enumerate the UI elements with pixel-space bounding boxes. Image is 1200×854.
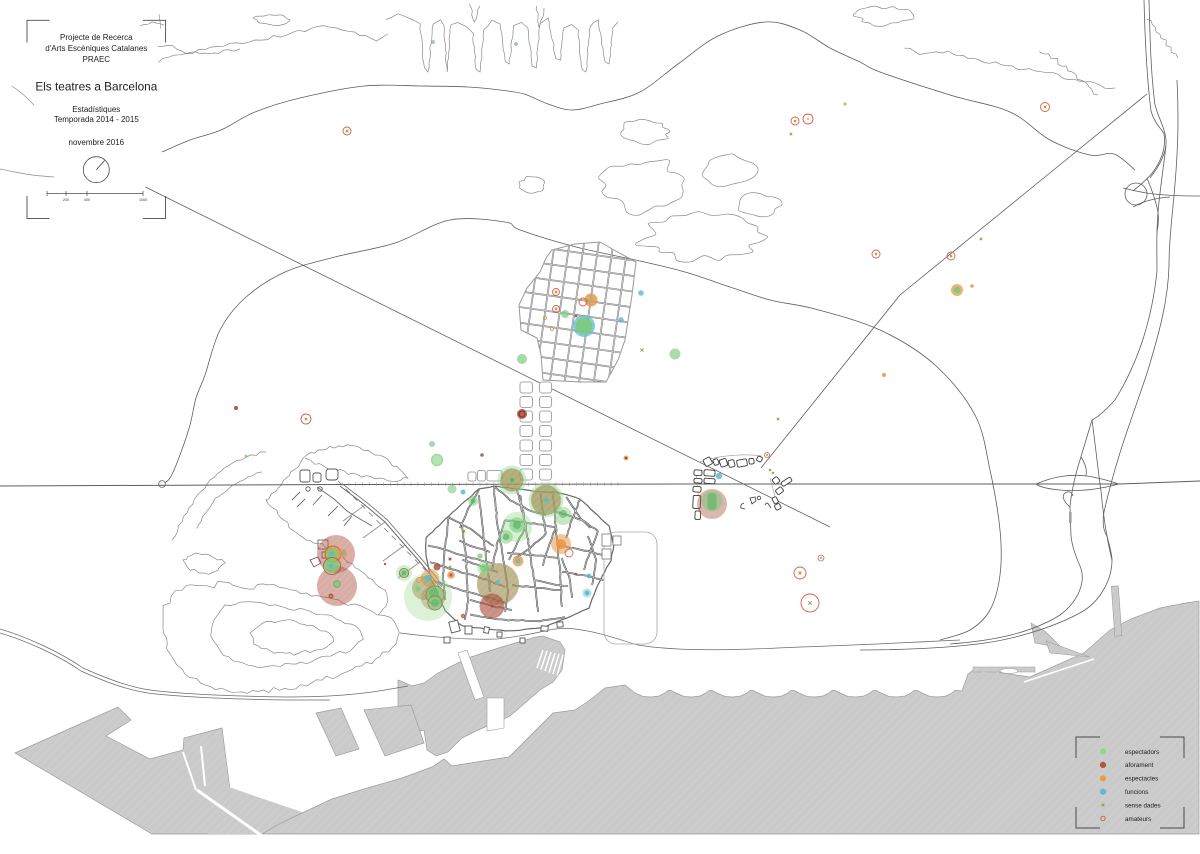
svg-text:sense dades: sense dades xyxy=(1125,802,1161,809)
svg-text:espectacles: espectacles xyxy=(1125,776,1158,783)
svg-text:amateurs: amateurs xyxy=(1125,816,1151,823)
svg-text:PRAEC: PRAEC xyxy=(83,55,111,64)
svg-text:Projecte de Recerca: Projecte de Recerca xyxy=(60,33,133,42)
svg-text:novembre 2016: novembre 2016 xyxy=(69,138,125,147)
svg-text:aforament: aforament xyxy=(1125,762,1154,769)
svg-text:Els teatres a Barcelona: Els teatres a Barcelona xyxy=(35,80,157,94)
svg-text:espectadors: espectadors xyxy=(1125,749,1159,756)
svg-text:Temporada 2014 - 2015: Temporada 2014 - 2015 xyxy=(54,115,140,124)
svg-text:funcions: funcions xyxy=(1125,789,1148,796)
svg-text:200: 200 xyxy=(63,198,69,202)
svg-text:400: 400 xyxy=(84,198,90,202)
svg-text:1000: 1000 xyxy=(139,198,147,202)
svg-text:Estadístiques: Estadístiques xyxy=(72,105,120,114)
svg-text:d'Arts Escèniques Catalanes: d'Arts Escèniques Catalanes xyxy=(45,44,147,53)
